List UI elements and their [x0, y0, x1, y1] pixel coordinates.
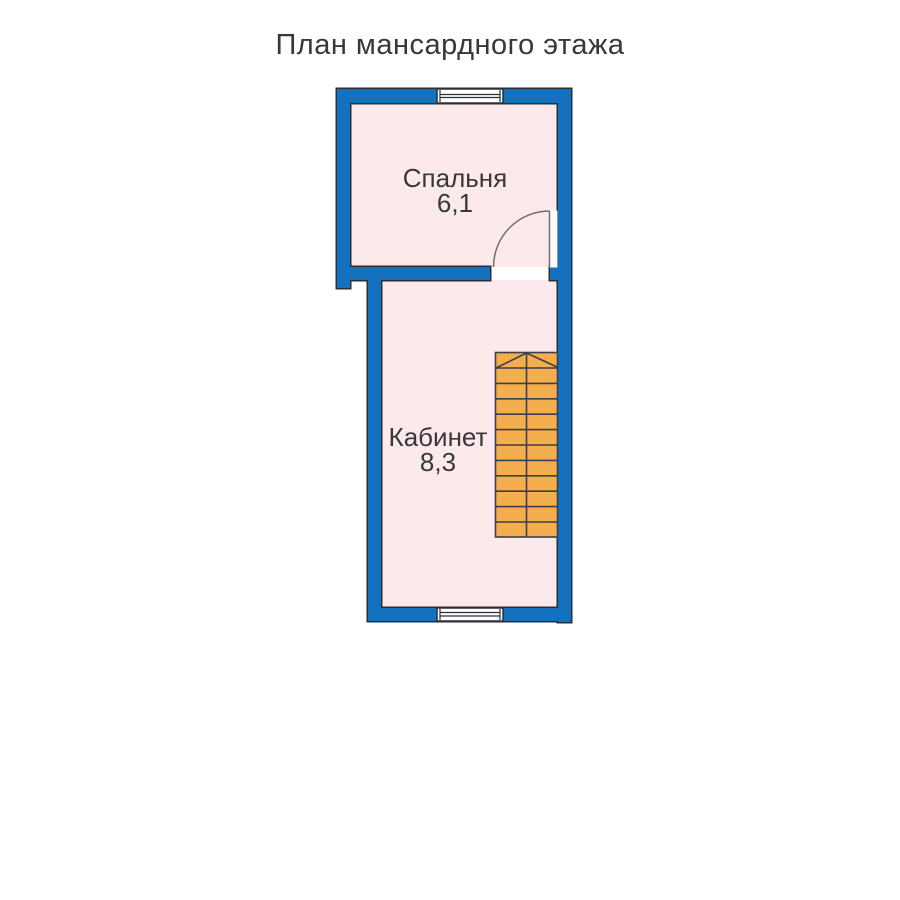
bottom-window-frame [437, 608, 503, 621]
page-title: План мансардного этажа [275, 29, 624, 61]
wall-right [558, 89, 571, 622]
floor-plan-page: План мансардного этажа [0, 0, 900, 900]
bottom-window [437, 608, 503, 621]
bedroom-area: 6,1 [437, 188, 473, 218]
office-area: 8,3 [420, 447, 456, 477]
wall-left-bedroom [337, 89, 350, 288]
wall-left-office [368, 280, 381, 621]
staircase [496, 353, 558, 538]
wall-divider [337, 267, 490, 280]
door-recess [550, 211, 558, 268]
floor-plan-canvas: План мансардного этажа [0, 0, 900, 900]
wall-door-stub [550, 267, 571, 280]
top-window [437, 89, 503, 103]
top-window-frame [437, 89, 503, 103]
